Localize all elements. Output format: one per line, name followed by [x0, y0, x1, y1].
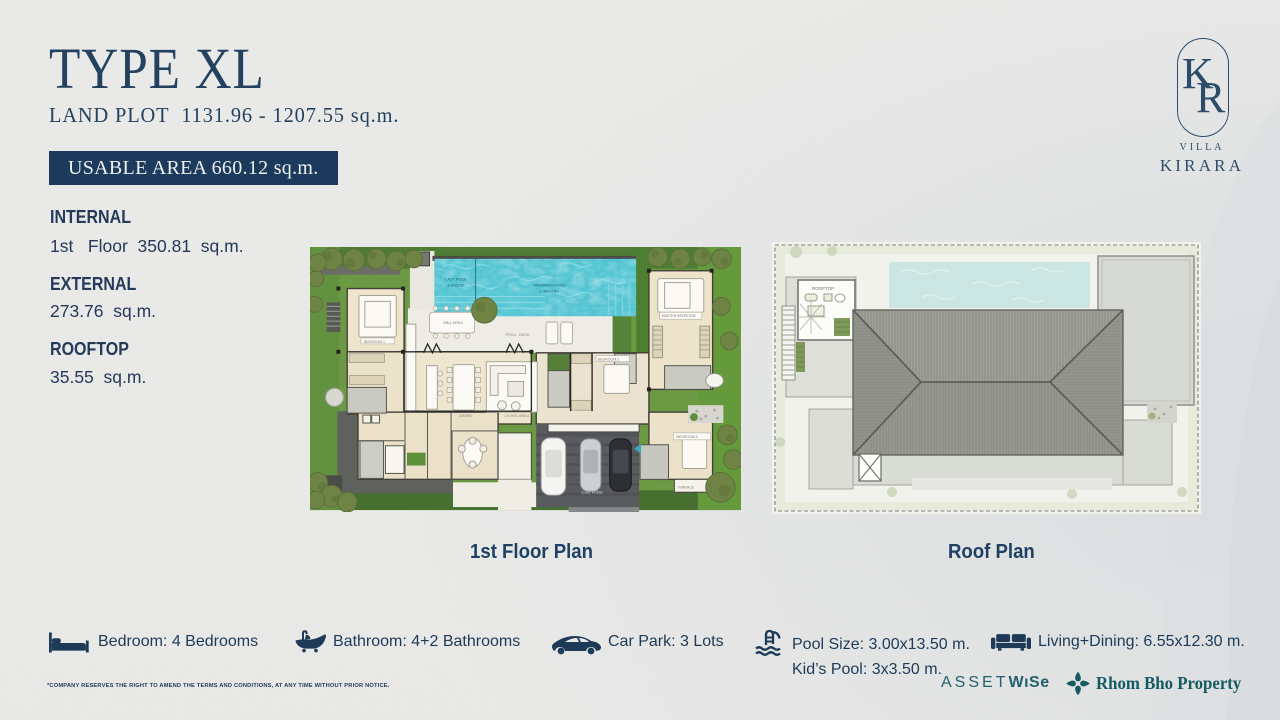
svg-text:DINING: DINING	[459, 413, 473, 418]
svg-text:LAZY POOL: LAZY POOL	[445, 277, 467, 282]
svg-text:3.00x3.50: 3.00x3.50	[447, 283, 465, 288]
svg-text:ROOFTOP: ROOFTOP	[812, 286, 834, 291]
svg-text:BBQ AREA: BBQ AREA	[443, 320, 463, 325]
svg-text:BEDROOM 2: BEDROOM 2	[598, 358, 619, 362]
svg-text:3.00x13.50: 3.00x13.50	[539, 288, 559, 293]
svg-text:TERRACE: TERRACE	[677, 485, 694, 489]
svg-text:CAR PARK: CAR PARK	[581, 490, 603, 495]
svg-text:LIVING AREA: LIVING AREA	[505, 413, 530, 418]
svg-text:MASTER BEDROOM: MASTER BEDROOM	[662, 314, 696, 318]
svg-text:POOL DECK: POOL DECK	[506, 332, 530, 337]
svg-text:BEDROOM 3: BEDROOM 3	[676, 435, 697, 439]
svg-text:SWIMMING POOL: SWIMMING POOL	[533, 283, 567, 288]
svg-text:BEDROOM 1: BEDROOM 1	[364, 340, 385, 344]
